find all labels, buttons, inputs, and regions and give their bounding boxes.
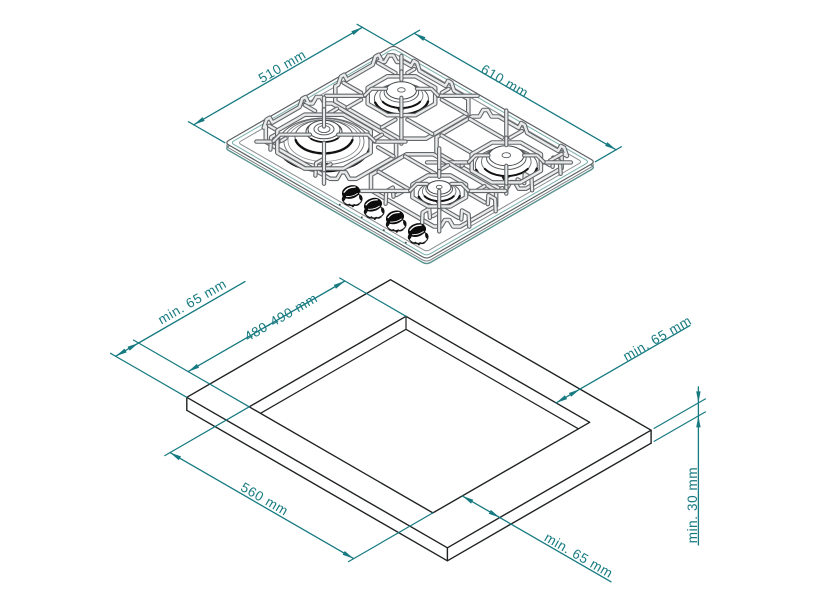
svg-text:min. 30 mm: min. 30 mm xyxy=(685,467,700,544)
